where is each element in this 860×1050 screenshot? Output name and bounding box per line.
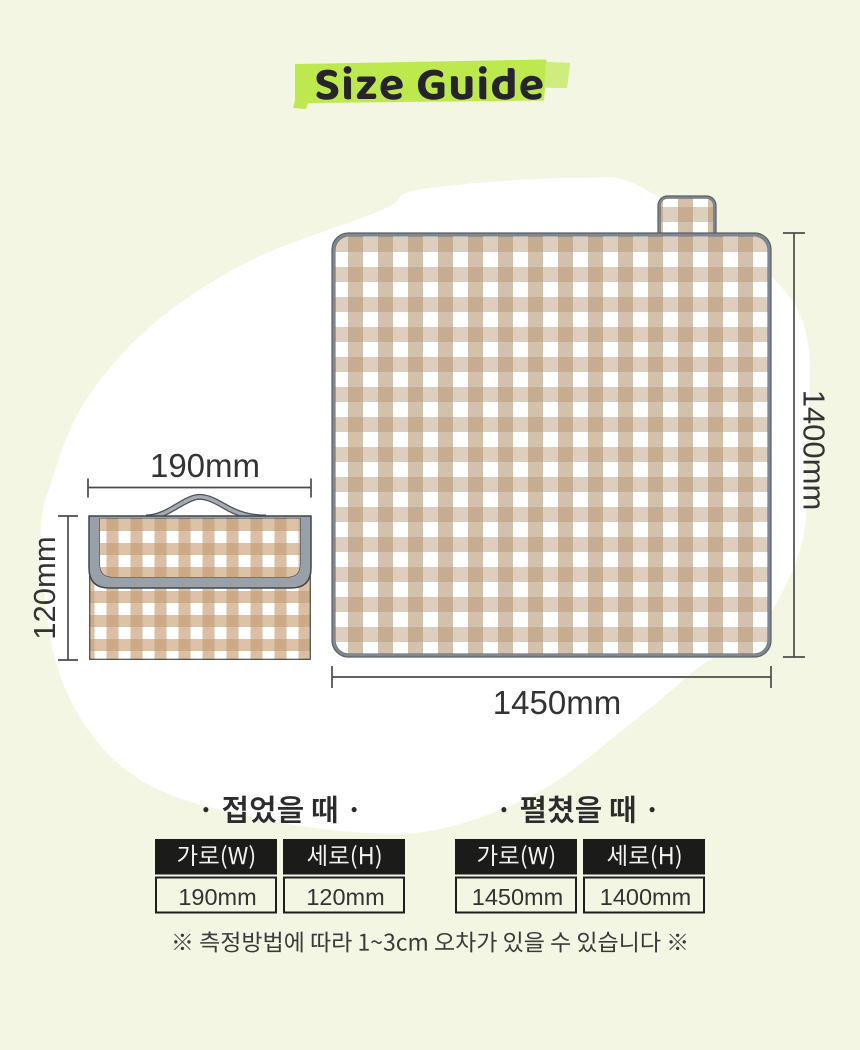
svg-text:190mm: 190mm [150, 447, 260, 484]
svg-text:120mm: 120mm [306, 884, 384, 910]
svg-text:1400mm: 1400mm [797, 390, 832, 511]
svg-text:120mm: 120mm [27, 536, 62, 639]
svg-text:1450mm: 1450mm [472, 884, 563, 910]
svg-text:1450mm: 1450mm [493, 684, 621, 721]
svg-text:1400mm: 1400mm [600, 884, 691, 910]
svg-text:190mm: 190mm [178, 884, 256, 910]
